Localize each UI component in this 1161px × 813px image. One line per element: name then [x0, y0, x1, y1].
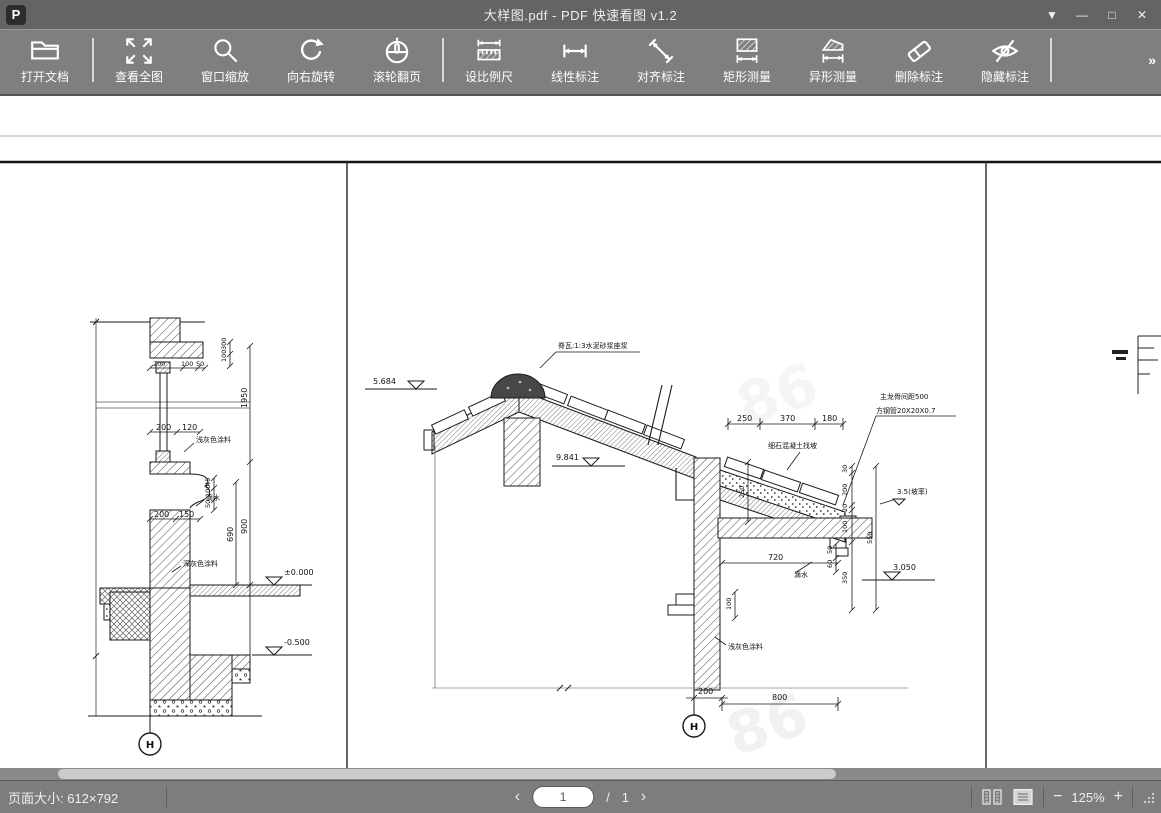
single-page-view-icon[interactable] — [1012, 789, 1034, 805]
dim-label: 100 — [725, 598, 733, 610]
toolbar-button-rotate-right[interactable]: 向右旋转 — [268, 35, 354, 92]
note-label: 细石混凝土找坡 — [768, 441, 817, 450]
status-bar: 页面大小: 612×792 ‹ / 1 › − 125% + — [0, 780, 1161, 813]
zoom-out-button[interactable]: − — [1053, 788, 1062, 806]
page-size-label: 页面大小: 612×792 — [8, 788, 118, 807]
dim-label: 100 — [220, 350, 228, 362]
toolbar-label: 设比例尺 — [465, 68, 513, 85]
window-controls: ▼ — □ ✕ — [1045, 8, 1149, 22]
dim-label: 50 — [826, 546, 834, 554]
statusbar-separator — [1043, 787, 1044, 807]
zoom-in-button[interactable]: + — [1114, 788, 1123, 806]
dim-label: 100 — [841, 521, 849, 533]
note-label: 主龙骨间距500 — [880, 392, 928, 401]
toolbar-button-window-zoom[interactable]: 窗口缩放 — [182, 35, 268, 92]
note-label: 滴水 — [794, 570, 808, 579]
toolbar-button-rect-measure[interactable]: 矩形测量 — [704, 35, 790, 92]
toolbar-label: 滚轮翻页 — [373, 68, 421, 85]
note-label: 3.5(坡率) — [897, 487, 928, 496]
mouse-wheel-icon — [381, 35, 413, 67]
dim-label: 120 — [182, 423, 197, 432]
toolbar-button-open[interactable]: 打开文档 — [0, 35, 90, 92]
toolbar-button-shape-measure[interactable]: 异形测量 — [790, 35, 876, 92]
dim-label: 720 — [768, 553, 783, 562]
dim-label: 200 — [841, 484, 849, 496]
eraser-icon — [903, 35, 935, 67]
rotate-right-icon — [295, 35, 327, 67]
detail-bubble-label: H — [690, 722, 698, 733]
elevation-label: 5.684 — [373, 377, 396, 386]
pdf-page-drawing: 86 86 — [0, 96, 1161, 768]
dim-label: 150 — [179, 510, 194, 519]
next-page-icon[interactable]: › — [641, 788, 646, 806]
resize-grip-icon[interactable] — [1142, 791, 1155, 804]
elevation-label: -0.500 — [284, 638, 310, 647]
document-canvas[interactable]: 86 86 — [0, 96, 1161, 768]
dim-label: 550 — [866, 532, 874, 544]
dim-label: 30 — [841, 465, 849, 473]
skin-menu-icon[interactable]: ▼ — [1045, 8, 1059, 22]
toolbar-label: 删除标注 — [895, 68, 943, 85]
horizontal-scrollbar[interactable] — [0, 768, 1161, 780]
note-label: 方钢管20X20X0.7 — [876, 406, 936, 415]
note-label: 浅灰色涂料 — [728, 642, 763, 651]
page-total-label: 1 — [622, 790, 629, 805]
toolbar-label: 异形测量 — [809, 68, 857, 85]
previous-page-icon[interactable]: ‹ — [515, 788, 520, 806]
dim-label: 200 — [153, 360, 165, 368]
dim-label: 20 — [841, 504, 849, 512]
toolbar-label: 窗口缩放 — [201, 68, 249, 85]
toolbar-button-fit-view[interactable]: 查看全图 — [96, 35, 182, 92]
dim-label: 180 — [822, 414, 837, 423]
statusbar-separator — [971, 787, 972, 807]
toolbar-label: 打开文档 — [21, 68, 69, 85]
note-label: 脊瓦:1:3水泥砂浆座浆 — [558, 341, 628, 350]
toolbar-separator — [92, 38, 94, 82]
note-label: 深灰色涂料 — [183, 559, 218, 568]
expand-arrows-icon — [123, 35, 155, 67]
app-logo-letter: P — [12, 7, 21, 22]
dim-label: 370 — [780, 414, 795, 423]
toolbar-button-linear-dim[interactable]: 线性标注 — [532, 35, 618, 92]
dim-label: 60 — [826, 560, 834, 568]
continuous-view-icon[interactable] — [981, 789, 1003, 805]
page-separator: / — [606, 790, 610, 805]
scale-ruler-icon — [473, 35, 505, 67]
folder-icon — [29, 35, 61, 67]
title-bar: P 大样图.pdf - PDF 快速看图 v1.2 ▼ — □ ✕ — [0, 0, 1161, 30]
dim-label: 250 — [737, 414, 752, 423]
dim-label: 800 — [772, 693, 787, 702]
toolbar-label: 对齐标注 — [637, 68, 685, 85]
toolbar: 打开文档 查看全图 窗口缩放 向右旋转 滚轮翻页 — [0, 30, 1161, 96]
detail-bubble-label: H — [146, 740, 154, 751]
statusbar-separator — [166, 787, 167, 807]
toolbar-button-aligned-dim[interactable]: 对齐标注 — [618, 35, 704, 92]
toolbar-label: 隐藏标注 — [981, 68, 1029, 85]
toolbar-label: 矩形测量 — [723, 68, 771, 85]
statusbar-separator — [1132, 787, 1133, 807]
minimize-icon[interactable]: — — [1075, 8, 1089, 22]
page-number-input[interactable] — [532, 786, 594, 808]
elevation-label: 9.841 — [556, 453, 579, 462]
dim-label: 1950 — [240, 388, 249, 408]
eye-off-icon — [989, 35, 1021, 67]
dim-label: 50 — [196, 360, 204, 368]
aligned-dimension-icon — [645, 35, 677, 67]
dim-label: 350 — [841, 572, 849, 584]
dim-label: 900 — [240, 519, 249, 534]
toolbar-label: 向右旋转 — [287, 68, 335, 85]
dim-label: 100 — [181, 360, 193, 368]
window-title: 大样图.pdf - PDF 快速看图 v1.2 — [0, 5, 1161, 24]
scrollbar-thumb[interactable] — [58, 769, 836, 779]
dim-label: 690 — [226, 527, 235, 542]
rect-measure-icon — [731, 35, 763, 67]
toolbar-label: 查看全图 — [115, 68, 163, 85]
dim-label: 200 — [698, 687, 713, 696]
note-label: 滴水 — [206, 493, 220, 502]
elevation-label: 3.050 — [893, 563, 916, 572]
maximize-icon[interactable]: □ — [1105, 8, 1119, 22]
zoom-level-label: 125% — [1071, 790, 1104, 805]
note-label: 浅灰色涂料 — [196, 435, 231, 444]
zoom-controls: − 125% + — [971, 787, 1155, 807]
elevation-label: ±0.000 — [284, 568, 314, 577]
page-navigation: ‹ / 1 › — [515, 786, 647, 808]
app-logo-icon: P — [6, 5, 26, 25]
dim-label: 300 — [220, 338, 228, 350]
linear-dimension-icon — [559, 35, 591, 67]
dim-label: 250 — [738, 486, 746, 498]
toolbar-button-wheel-page[interactable]: 滚轮翻页 — [354, 35, 440, 92]
toolbar-overflow-chevron[interactable]: » — [1148, 52, 1156, 68]
dim-label: 200 — [156, 423, 171, 432]
close-icon[interactable]: ✕ — [1135, 8, 1149, 22]
toolbar-separator — [1050, 38, 1052, 82]
toolbar-button-delete-annotation[interactable]: 删除标注 — [876, 35, 962, 92]
toolbar-separator — [442, 38, 444, 82]
toolbar-button-set-scale[interactable]: 设比例尺 — [446, 35, 532, 92]
dim-label: 200 — [154, 510, 169, 519]
toolbar-button-hide-annotation[interactable]: 隐藏标注 — [962, 35, 1048, 92]
polygon-measure-icon — [817, 35, 849, 67]
magnifier-icon — [209, 35, 241, 67]
app-window: P 大样图.pdf - PDF 快速看图 v1.2 ▼ — □ ✕ 打开文档 查… — [0, 0, 1161, 813]
toolbar-label: 线性标注 — [551, 68, 599, 85]
